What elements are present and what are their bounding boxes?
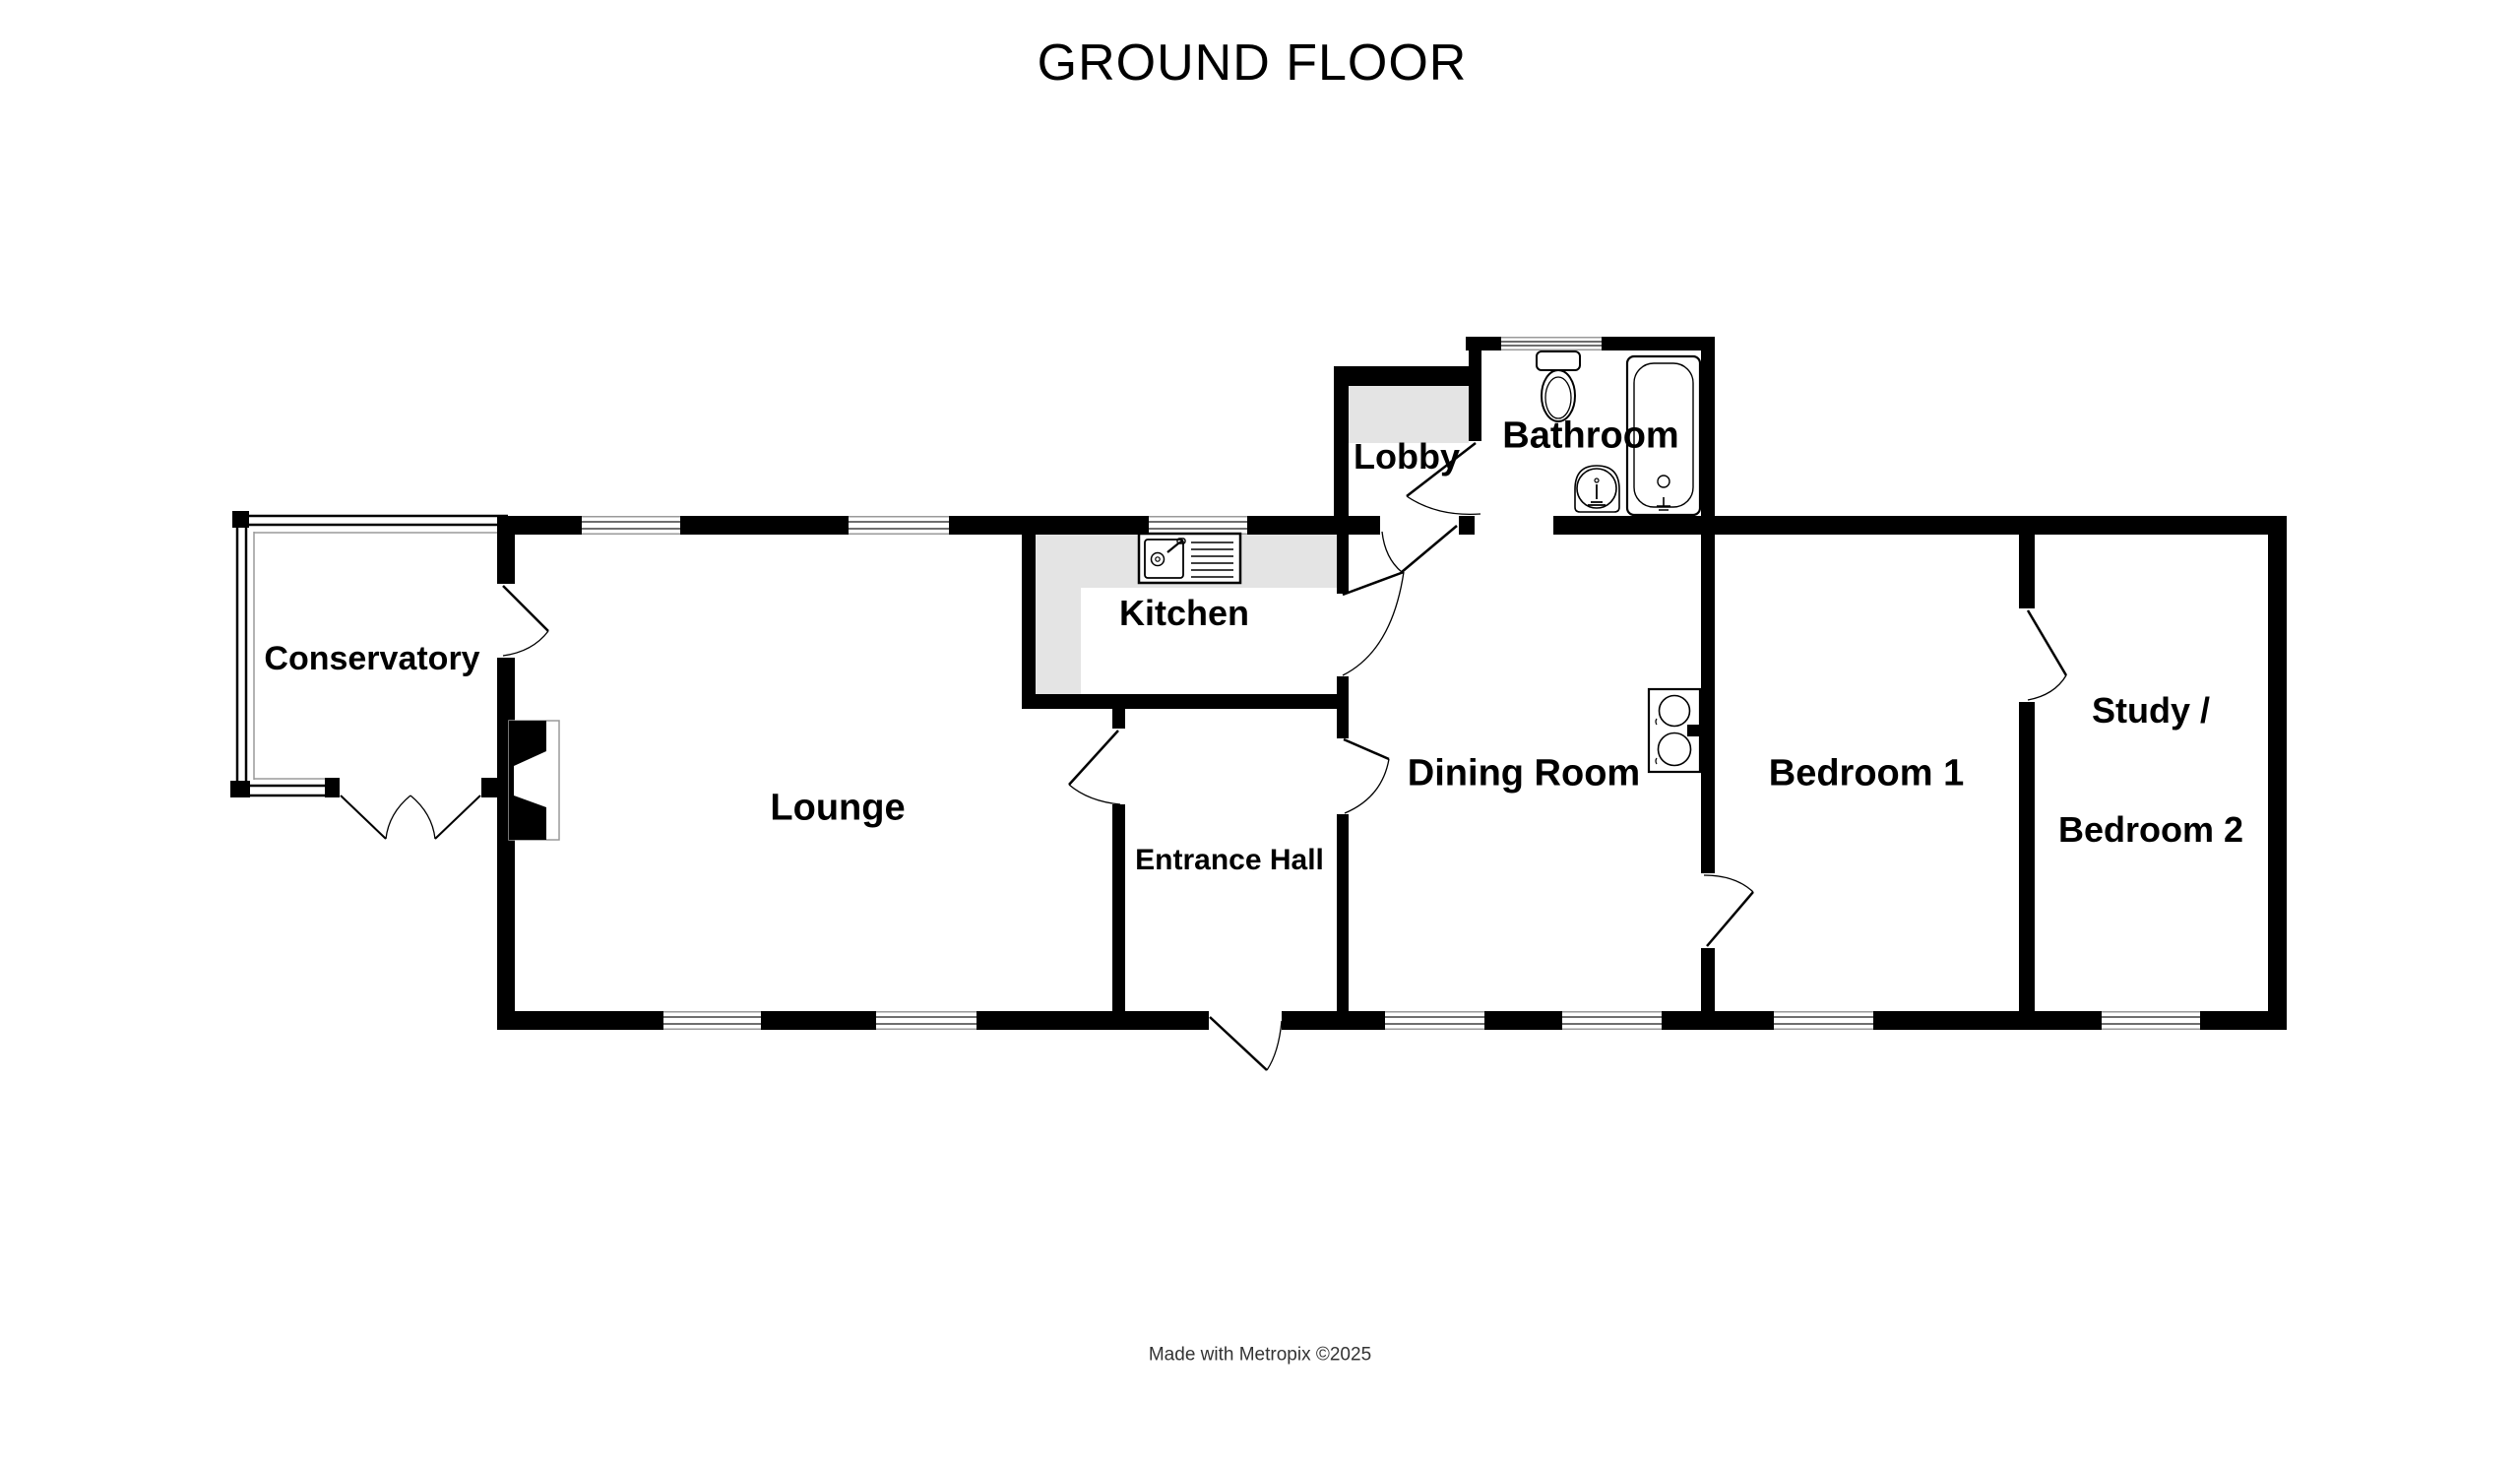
door-arc — [1343, 572, 1404, 675]
window — [1385, 1011, 1484, 1030]
floor-plan-page: GROUND FLOOR Conservatory Lounge Kitchen… — [0, 0, 2520, 1464]
exterior-walls — [497, 516, 2287, 1030]
room-label-lobby: Lobby — [1354, 437, 1460, 477]
room-label-bathroom: Bathroom — [1502, 415, 1678, 458]
room-label-conservatory: Conservatory — [264, 640, 479, 677]
door-arc — [1344, 739, 1389, 813]
room-label-study-line2: Bedroom 2 — [2058, 809, 2243, 849]
lobby-floor-shading — [1349, 386, 1469, 443]
window — [1149, 516, 1247, 535]
window — [876, 1011, 976, 1030]
door-arc — [341, 796, 480, 839]
room-label-dining-room: Dining Room — [1408, 753, 1640, 796]
window — [1562, 1011, 1662, 1030]
room-label-kitchen: Kitchen — [1119, 594, 1249, 633]
door-arc — [1382, 526, 1457, 572]
window — [2102, 1011, 2200, 1030]
page-title: GROUND FLOOR — [1038, 34, 1468, 92]
window — [849, 516, 949, 535]
fireplace-icon — [509, 721, 559, 840]
door-arc — [1704, 875, 1753, 946]
room-label-entrance-hall: Entrance Hall — [1135, 844, 1324, 877]
door-arc — [1069, 731, 1120, 804]
toilet-icon — [1537, 351, 1580, 421]
window — [1501, 337, 1602, 350]
kitchen-sink-icon — [1139, 534, 1240, 583]
credit-text: Made with Metropix ©2025 — [1149, 1344, 1371, 1365]
room-label-bedroom-1: Bedroom 1 — [1769, 753, 1964, 796]
window — [582, 516, 680, 535]
wash-basin-icon — [1575, 466, 1619, 512]
door-arc — [1210, 1017, 1282, 1070]
room-label-study-bedroom-2: Study / Bedroom 2 — [2058, 611, 2243, 929]
window — [663, 1011, 761, 1030]
room-label-study-line1: Study / — [2058, 690, 2243, 730]
hob-icon — [1649, 689, 1701, 772]
door-arc — [503, 586, 548, 656]
window — [1774, 1011, 1873, 1030]
room-label-lounge: Lounge — [770, 788, 905, 830]
